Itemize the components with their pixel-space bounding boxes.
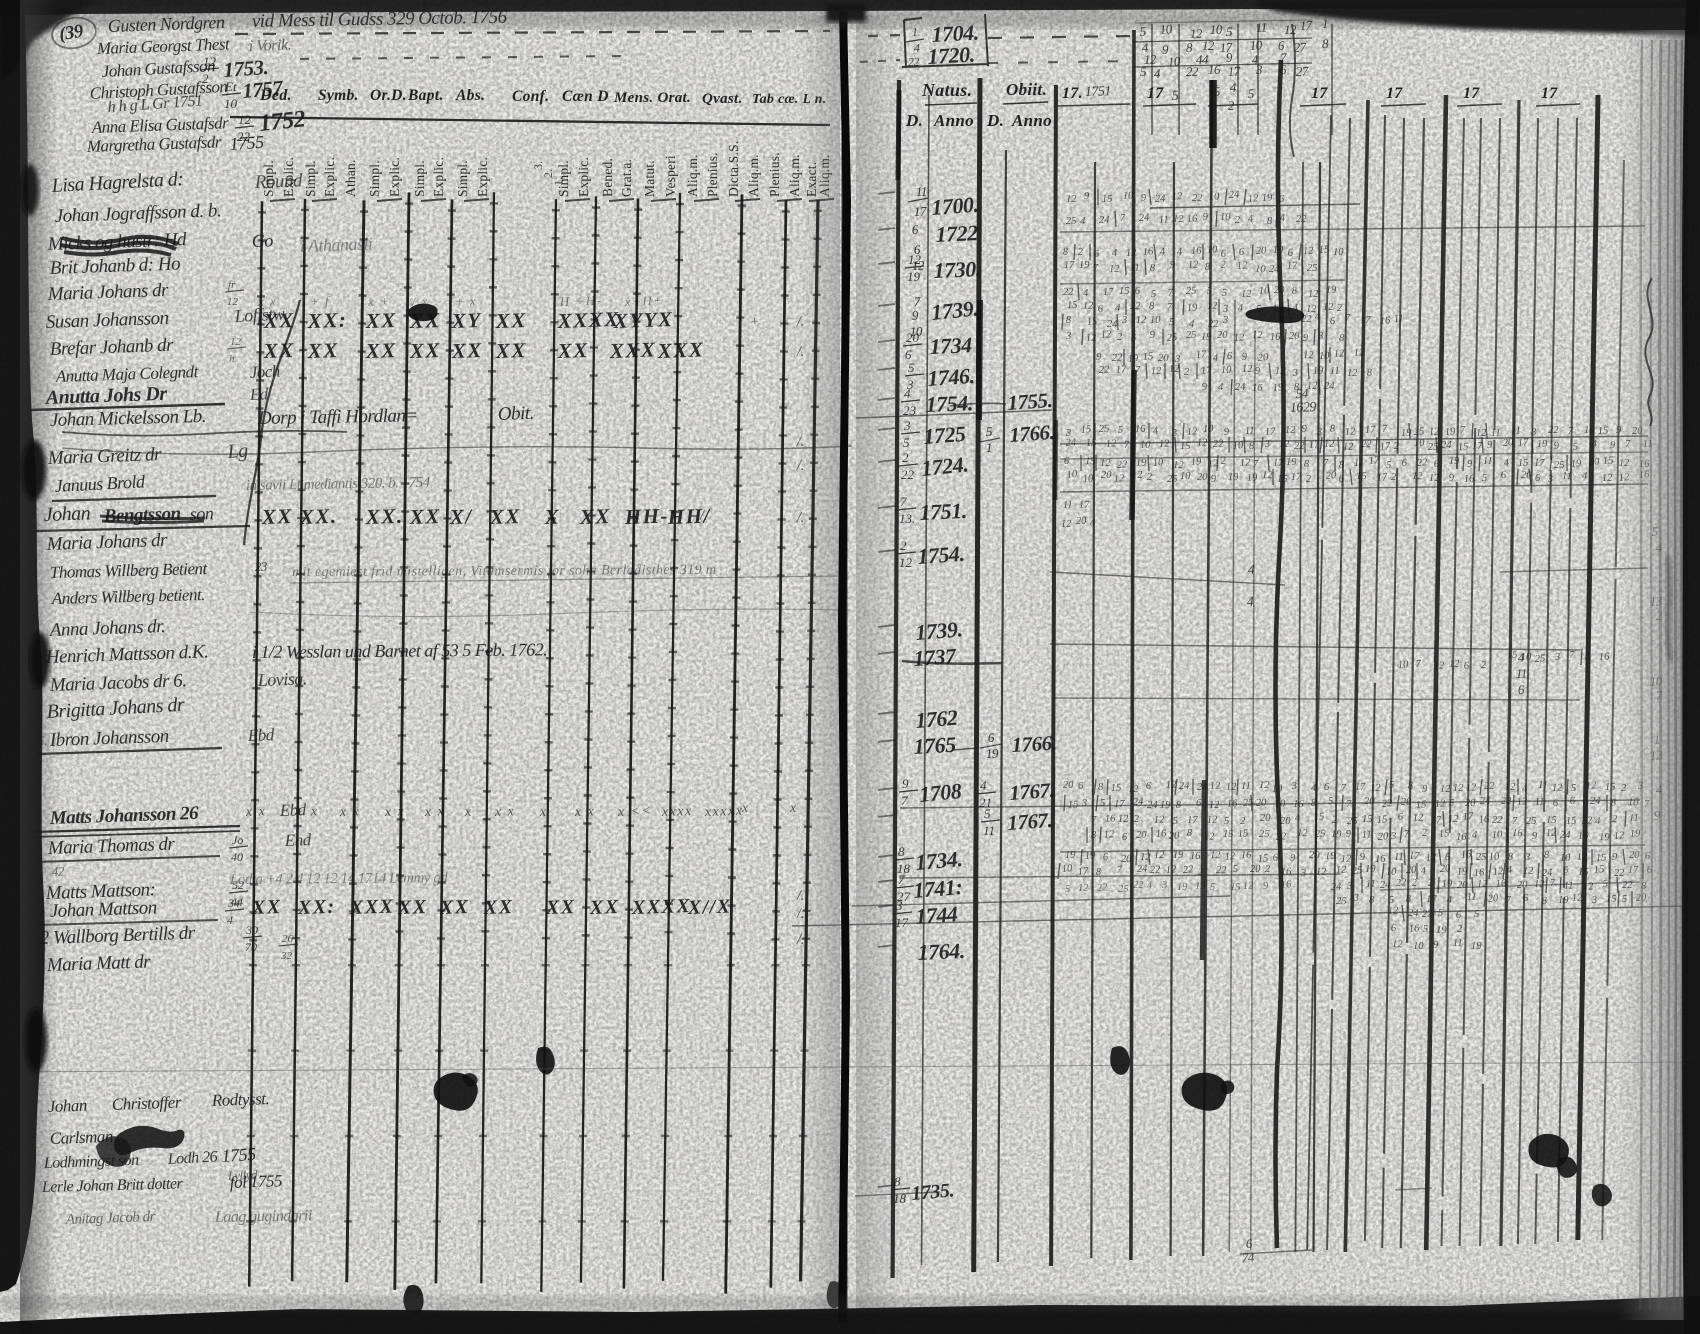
svg-text:Maria Greitz dr: Maria Greitz dr: [46, 444, 162, 469]
svg-text:17: 17: [1265, 426, 1277, 438]
svg-text:1752: 1752: [258, 106, 307, 137]
svg-text:1765: 1765: [913, 732, 957, 759]
svg-text:40: 40: [231, 850, 243, 864]
svg-text:12: 12: [1240, 457, 1252, 469]
svg-text:16: 16: [1473, 867, 1485, 879]
svg-text:17: 17: [1368, 455, 1380, 467]
svg-text:17: 17: [1291, 471, 1303, 483]
svg-text:Plenius.: Plenius.: [767, 152, 782, 197]
svg-text:25: 25: [1526, 816, 1537, 827]
svg-text:4: 4: [1115, 303, 1121, 314]
svg-text:5: 5: [1100, 798, 1105, 809]
svg-text:19: 19: [986, 746, 999, 761]
svg-text:22: 22: [1213, 438, 1225, 450]
svg-text:12: 12: [1197, 437, 1209, 449]
svg-text:x <<: x <<: [617, 804, 653, 820]
svg-text:x x: x x: [424, 804, 446, 820]
svg-text:1720.: 1720.: [927, 42, 975, 69]
svg-text:Maria Matt dr: Maria Matt dr: [45, 951, 151, 976]
svg-text:1751: 1751: [1085, 84, 1111, 100]
svg-text:4: 4: [1311, 783, 1317, 794]
svg-text:3: 3: [1524, 852, 1530, 863]
svg-text:Natus.: Natus.: [921, 80, 972, 100]
svg-text:24: 24: [1107, 319, 1118, 330]
svg-text:fol 1755: fol 1755: [229, 1171, 282, 1192]
svg-text:20: 20: [1257, 352, 1269, 364]
svg-text:Maria Johans dr: Maria Johans dr: [45, 530, 168, 555]
svg-text:20: 20: [1076, 516, 1088, 527]
svg-text:6: 6: [1563, 865, 1569, 876]
svg-text:22: 22: [1422, 908, 1434, 920]
svg-text:10: 10: [224, 96, 238, 111]
svg-text:15: 15: [1318, 244, 1329, 256]
svg-text:70: 70: [245, 940, 257, 954]
svg-text:1766.: 1766.: [1009, 420, 1055, 447]
svg-text:Mens. Orat.: Mens. Orat.: [613, 90, 691, 106]
svg-text:11: 11: [1538, 780, 1548, 791]
svg-text:12: 12: [1285, 425, 1296, 436]
svg-text:17: 17: [1431, 815, 1443, 826]
svg-text:XY: XY: [450, 308, 482, 333]
svg-text:22: 22: [1192, 193, 1203, 204]
svg-text:XXX: XXX: [656, 337, 704, 363]
svg-text:11: 11: [1483, 456, 1493, 467]
svg-text:Aliq.m.: Aliq.m.: [685, 154, 700, 197]
svg-text:19: 19: [1079, 260, 1091, 271]
svg-text:4: 4: [1080, 216, 1086, 227]
svg-text:20: 20: [1260, 813, 1271, 824]
svg-text:10: 10: [1255, 264, 1266, 275]
svg-text:12: 12: [1154, 814, 1166, 826]
svg-text:12: 12: [1303, 246, 1315, 257]
svg-text:1766.: 1766.: [1011, 731, 1057, 757]
svg-text:16: 16: [1155, 828, 1167, 840]
svg-text:8: 8: [1098, 782, 1104, 793]
svg-text:XX: XX: [578, 504, 611, 529]
svg-text:10: 10: [1398, 659, 1410, 671]
svg-text:10: 10: [1220, 212, 1231, 223]
svg-text:7: 7: [1091, 815, 1097, 826]
svg-text:20: 20: [1502, 437, 1514, 449]
svg-text:17: 17: [1147, 85, 1164, 102]
svg-text:12: 12: [1204, 831, 1216, 843]
svg-text:16: 16: [1105, 813, 1117, 825]
svg-text:X/: X/: [448, 504, 473, 529]
svg-text:12: 12: [1429, 426, 1441, 438]
svg-text:11: 11: [1491, 428, 1501, 439]
svg-text:15: 15: [1578, 867, 1589, 878]
svg-text:11: 11: [1467, 892, 1477, 903]
svg-text:Simpl.: Simpl.: [412, 160, 427, 197]
svg-text:15: 15: [1602, 455, 1613, 467]
svg-text:11: 11: [1516, 666, 1528, 681]
svg-text:19: 19: [1272, 382, 1284, 394]
svg-text:/.: /.: [699, 508, 707, 524]
svg-text:6: 6: [1330, 316, 1336, 327]
svg-text:12: 12: [1347, 368, 1358, 379]
svg-text:25: 25: [1336, 896, 1347, 907]
svg-text:4: 4: [227, 913, 233, 927]
svg-text:9: 9: [1084, 191, 1090, 202]
svg-text:1751.: 1751.: [919, 498, 967, 525]
svg-text:x x: x x: [257, 293, 278, 309]
svg-text:7: 7: [1460, 425, 1466, 436]
svg-text:mit egemiest frid mistelligen,: mit egemiest frid mistelligen, Vitamserm…: [292, 563, 716, 580]
svg-text:17: 17: [1462, 811, 1474, 823]
svg-text:25: 25: [1167, 474, 1178, 485]
svg-text:2: 2: [1612, 814, 1618, 825]
svg-text:15: 15: [1223, 829, 1234, 840]
svg-text:Susan Johansson: Susan Johansson: [45, 308, 169, 333]
svg-text:12: 12: [1226, 782, 1238, 793]
svg-text:32: 32: [280, 950, 293, 962]
svg-text:XX: XX: [438, 896, 469, 919]
svg-text:9: 9: [1263, 881, 1269, 892]
svg-text:24: 24: [1155, 193, 1167, 205]
svg-text:12: 12: [1343, 442, 1355, 453]
svg-text:5: 5: [1482, 473, 1488, 484]
svg-text:22: 22: [1484, 781, 1495, 792]
svg-text:i 1/2 Wesslan und Barnet af 53: i 1/2 Wesslan und Barnet af 53 5 Feb. 17…: [252, 639, 547, 662]
svg-text:15: 15: [1111, 782, 1122, 794]
svg-text:+ x: + x: [295, 804, 319, 820]
svg-text:11: 11: [1241, 781, 1251, 792]
svg-text:XX: XX: [488, 504, 521, 529]
svg-text:22: 22: [1294, 441, 1305, 452]
svg-text:22: 22: [1182, 864, 1194, 876]
svg-text:XX: XX: [482, 896, 513, 919]
svg-text:19: 19: [1331, 829, 1342, 840]
svg-text:12: 12: [1132, 470, 1144, 481]
svg-text:17: 17: [1365, 425, 1377, 436]
svg-text:20: 20: [1217, 330, 1228, 341]
svg-text:17: 17: [1200, 365, 1212, 377]
svg-text:7: 7: [901, 793, 908, 808]
svg-text:20: 20: [1158, 353, 1169, 364]
svg-text:5: 5: [1221, 288, 1227, 299]
svg-text:7: 7: [900, 494, 907, 509]
svg-text:3: 3: [1591, 895, 1598, 906]
svg-text:10: 10: [1061, 863, 1073, 875]
svg-text:11: 11: [1394, 314, 1404, 325]
svg-text:Aliq.m.: Aliq.m.: [746, 154, 761, 197]
svg-text:25: 25: [1099, 423, 1110, 435]
svg-text:3: 3: [1300, 868, 1307, 879]
svg-text:Lodh 26: Lodh 26: [166, 1148, 218, 1168]
svg-text:7: 7: [1120, 213, 1126, 224]
svg-text:1708: 1708: [918, 778, 963, 807]
svg-text:3: 3: [1547, 474, 1554, 485]
svg-text:20: 20: [1364, 796, 1375, 807]
svg-text:6: 6: [1523, 893, 1529, 904]
svg-text:x x: x x: [574, 804, 596, 820]
svg-text:x x: x x: [494, 804, 516, 820]
svg-text:16: 16: [1293, 799, 1304, 810]
svg-text:Anders Willberg betient.: Anders Willberg betient.: [51, 585, 206, 608]
svg-text:25: 25: [1166, 332, 1177, 344]
svg-text:Qvast.: Qvast.: [702, 91, 743, 107]
svg-text:3: 3: [1222, 315, 1228, 326]
svg-text:20: 20: [1487, 893, 1499, 905]
svg-text:10: 10: [1150, 315, 1161, 326]
svg-text:Et: Et: [224, 79, 237, 94]
svg-text:17: 17: [1379, 441, 1391, 453]
svg-text:24: 24: [1269, 264, 1280, 275]
svg-text:19: 19: [1186, 302, 1198, 314]
svg-text:25: 25: [1186, 330, 1197, 341]
svg-text:Laag gugindarii: Laag gugindarii: [214, 1207, 312, 1226]
svg-text:12: 12: [1252, 330, 1263, 341]
svg-text:5: 5: [984, 806, 991, 821]
svg-text:12: 12: [1552, 783, 1563, 794]
svg-text:15: 15: [1086, 316, 1097, 328]
svg-text:19: 19: [1584, 425, 1595, 436]
svg-text:Lovisa.: Lovisa.: [256, 668, 307, 690]
svg-text:22: 22: [1548, 425, 1559, 436]
svg-text:12: 12: [1492, 866, 1504, 878]
svg-text:12: 12: [1297, 828, 1308, 839]
svg-text:34: 34: [227, 896, 240, 910]
svg-text:12: 12: [1333, 348, 1345, 360]
svg-text:XX: XX: [260, 504, 293, 529]
svg-text:20: 20: [1121, 854, 1133, 865]
svg-text:24: 24: [1235, 382, 1247, 393]
svg-text:20: 20: [1465, 798, 1476, 809]
svg-text:9: 9: [1422, 784, 1428, 795]
svg-text:11: 11: [1562, 471, 1572, 482]
svg-text:17: 17: [1195, 349, 1207, 361]
svg-text:20: 20: [1136, 830, 1147, 841]
svg-text:24: 24: [1065, 437, 1077, 449]
svg-text:1755: 1755: [221, 1144, 257, 1166]
svg-text:12: 12: [1505, 782, 1517, 793]
svg-text:9: 9: [1433, 940, 1439, 951]
svg-text:x +: x +: [367, 293, 391, 309]
svg-text:10: 10: [1273, 244, 1285, 256]
svg-text:15: 15: [1415, 799, 1426, 811]
svg-text:Vesperi: Vesperi: [663, 155, 678, 197]
svg-text:12: 12: [1453, 783, 1464, 794]
svg-text:25: 25: [1066, 216, 1077, 227]
svg-text:17: 17: [1273, 458, 1284, 469]
svg-text:15: 15: [1119, 286, 1130, 297]
svg-text:11: 11: [1453, 938, 1463, 949]
svg-text:12: 12: [1448, 814, 1459, 825]
svg-text:74: 74: [1242, 1250, 1255, 1265]
svg-text:12: 12: [1433, 660, 1445, 672]
svg-text:8: 8: [1149, 301, 1155, 312]
svg-text:52: 52: [232, 878, 244, 892]
svg-text:15: 15: [1230, 882, 1241, 893]
svg-text:17: 17: [1103, 287, 1114, 298]
svg-text:Brefar Johanb dr: Brefar Johanb dr: [49, 335, 174, 360]
svg-text:15: 15: [1546, 815, 1557, 826]
svg-text:XX: XX: [306, 338, 339, 363]
svg-text:22: 22: [1150, 864, 1162, 876]
svg-text:12: 12: [1307, 381, 1319, 392]
svg-text:12: 12: [1173, 214, 1184, 225]
svg-text:17: 17: [1355, 782, 1367, 793]
svg-text:5: 5: [1389, 895, 1395, 906]
svg-text:Conf.: Conf.: [512, 88, 549, 105]
svg-text:Maria Johans dr: Maria Johans dr: [46, 280, 169, 305]
svg-text:7: 7: [1346, 799, 1352, 810]
svg-text:Plenius.: Plenius.: [705, 152, 720, 197]
svg-text:19: 19: [1136, 457, 1148, 469]
svg-text:3: 3: [903, 418, 911, 433]
svg-text:22: 22: [1581, 815, 1593, 827]
svg-text:12: 12: [1086, 332, 1098, 344]
svg-text:16: 16: [1408, 923, 1420, 935]
svg-text:12: 12: [1425, 852, 1437, 864]
svg-text:2.: 2.: [541, 169, 555, 178]
svg-text:Explic.: Explic.: [576, 157, 591, 197]
svg-text:15: 15: [1606, 894, 1617, 905]
svg-text:Rodtysst.: Rodtysst.: [210, 1089, 269, 1110]
svg-text:1.: 1.: [551, 177, 565, 186]
svg-text:12: 12: [1602, 473, 1614, 484]
svg-text:19: 19: [1365, 864, 1376, 875]
svg-text:3: 3: [1171, 428, 1178, 439]
svg-text:24: 24: [1228, 189, 1240, 201]
svg-text:Abs.: Abs.: [455, 87, 485, 104]
svg-text:Ebd: Ebd: [246, 725, 275, 745]
svg-text:12: 12: [1308, 289, 1319, 300]
svg-text:17: 17: [1463, 85, 1480, 102]
svg-text:10: 10: [1203, 424, 1215, 435]
svg-text:12: 12: [1224, 851, 1236, 863]
svg-text:12: 12: [1188, 259, 1200, 271]
svg-text:20: 20: [1289, 331, 1300, 342]
svg-text:12: 12: [1207, 814, 1219, 826]
svg-text:12: 12: [1370, 783, 1381, 794]
svg-text:1764.: 1764.: [917, 938, 965, 965]
svg-text:12: 12: [1151, 366, 1163, 377]
svg-text:11: 11: [983, 823, 995, 838]
svg-text:Symb.: Symb.: [318, 87, 359, 104]
svg-text:19: 19: [1325, 851, 1336, 862]
svg-text:5: 5: [1449, 798, 1454, 809]
svg-text:15: 15: [1597, 425, 1608, 437]
svg-text:12: 12: [1572, 892, 1584, 904]
svg-text:20: 20: [1169, 830, 1181, 842]
svg-text:12: 12: [1465, 782, 1477, 794]
svg-text:22: 22: [1063, 287, 1074, 298]
svg-text:17: 17: [1409, 851, 1420, 862]
svg-text:4: 4: [904, 386, 911, 401]
svg-text:12: 12: [1516, 796, 1528, 808]
svg-text:12: 12: [1259, 780, 1270, 791]
svg-text:10: 10: [1180, 471, 1192, 482]
svg-text:12: 12: [1388, 905, 1400, 917]
svg-text:Aliq.m.: Aliq.m.: [787, 154, 802, 197]
svg-text:XX: XX: [250, 896, 281, 919]
svg-text:6: 6: [1078, 781, 1084, 792]
svg-text:16: 16: [1464, 473, 1476, 485]
svg-text:25: 25: [1413, 426, 1424, 438]
svg-text:27: 27: [1295, 63, 1309, 79]
svg-text:1744: 1744: [915, 901, 959, 929]
svg-text:15: 15: [1195, 881, 1206, 892]
svg-text:XX: XX: [408, 504, 441, 529]
svg-text:12: 12: [1429, 473, 1441, 484]
svg-text:XX: XX: [262, 308, 295, 333]
svg-text:16: 16: [1281, 866, 1293, 878]
svg-text:XX: XX: [494, 338, 527, 363]
svg-text:24: 24: [1324, 381, 1335, 392]
svg-text:Bened.: Bened.: [600, 158, 615, 197]
svg-text:19: 19: [1558, 895, 1569, 906]
svg-text:24: 24: [1197, 782, 1209, 793]
svg-text:22: 22: [1361, 439, 1372, 450]
svg-text:7: 7: [1323, 458, 1329, 469]
svg-text:11: 11: [1159, 215, 1169, 226]
svg-text:10: 10: [1140, 440, 1152, 451]
svg-text:19: 19: [1436, 925, 1447, 936]
svg-text:19: 19: [1262, 192, 1274, 204]
svg-text:4: 4: [1248, 563, 1255, 578]
svg-text:xxxxx: xxxxx: [704, 804, 744, 820]
svg-text:x x: x x: [384, 804, 406, 820]
svg-text:16: 16: [1252, 383, 1263, 394]
svg-text:20: 20: [1197, 472, 1208, 483]
svg-text:5: 5: [1571, 783, 1576, 794]
svg-text:5: 5: [1233, 864, 1239, 875]
svg-text:24: 24: [1408, 908, 1419, 919]
svg-text:Matut.: Matut.: [642, 160, 657, 197]
svg-text:7: 7: [1512, 816, 1518, 827]
svg-text:Explic.: Explic.: [475, 157, 490, 197]
svg-text:15: 15: [1438, 828, 1449, 840]
svg-text:XX: XX: [262, 338, 295, 363]
svg-text:12: 12: [1477, 879, 1488, 890]
svg-text:6: 6: [1391, 923, 1397, 934]
svg-text:17: 17: [1187, 815, 1198, 826]
svg-text:XYYX: XYYX: [612, 307, 673, 333]
svg-text:15: 15: [1068, 799, 1079, 811]
svg-text:10: 10: [1152, 457, 1164, 469]
svg-text:15: 15: [1314, 811, 1325, 823]
svg-text:Grat.a.: Grat.a.: [619, 159, 634, 197]
svg-text:17: 17: [1227, 63, 1241, 79]
svg-text:XX: XX: [408, 338, 441, 363]
svg-text:10: 10: [1272, 783, 1284, 795]
svg-text:1: 1: [986, 440, 992, 455]
svg-text:1722: 1722: [935, 220, 979, 247]
svg-text:12: 12: [1210, 850, 1221, 861]
svg-text:12: 12: [1262, 470, 1273, 481]
svg-text:19: 19: [1444, 426, 1456, 438]
svg-text:12: 12: [1243, 880, 1255, 892]
svg-text:10: 10: [1386, 867, 1398, 878]
svg-text:5: 5: [1386, 460, 1391, 471]
svg-text:22: 22: [1099, 364, 1111, 376]
svg-text:12: 12: [1173, 460, 1184, 471]
svg-text:16: 16: [1270, 332, 1282, 343]
svg-text:15: 15: [1376, 814, 1387, 826]
svg-text:24: 24: [1441, 440, 1452, 451]
svg-text:12: 12: [1126, 248, 1138, 259]
svg-text:20: 20: [1250, 864, 1262, 875]
svg-text:17: 17: [1114, 799, 1125, 810]
svg-text:son: son: [189, 503, 214, 524]
svg-text:4: 4: [1582, 471, 1588, 482]
svg-text:17: 17: [1386, 85, 1403, 102]
svg-text:19: 19: [1570, 458, 1582, 470]
svg-text:D.: D.: [905, 111, 923, 130]
svg-text:Dorp i Taffi Hordlan=: Dorp i Taffi Hordlan=: [257, 405, 418, 429]
svg-text:16: 16: [1512, 828, 1523, 839]
